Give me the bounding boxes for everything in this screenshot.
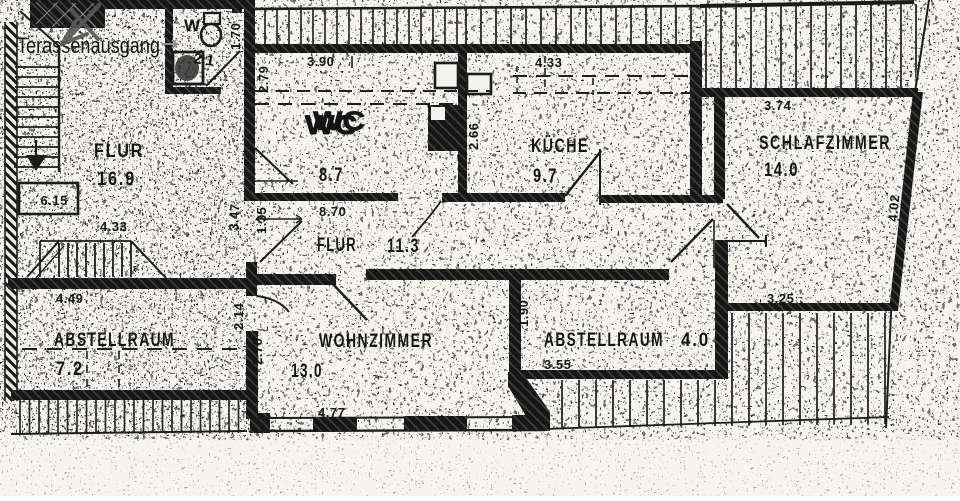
svg-text:WOHNZIMMER: WOHNZIMMER [319, 331, 433, 352]
svg-text:1.35: 1.35 [254, 207, 269, 234]
svg-text:4.49: 4.49 [56, 291, 83, 306]
svg-text:3.55: 3.55 [544, 357, 571, 372]
svg-text:4.77: 4.77 [318, 405, 345, 420]
svg-text:2.14: 2.14 [231, 302, 246, 330]
svg-text:FLUR: FLUR [94, 141, 144, 162]
svg-text:KÜCHE: KÜCHE [531, 136, 589, 157]
svg-text:ABSTELLRAUM: ABSTELLRAUM [544, 330, 664, 351]
svg-text:Terassenausgang: Terassenausgang [17, 33, 160, 58]
svg-text:4.02: 4.02 [885, 194, 902, 223]
svg-text:4.33: 4.33 [535, 55, 562, 70]
svg-text:8.70: 8.70 [319, 204, 346, 219]
svg-text:16.9: 16.9 [97, 169, 136, 190]
svg-text:3.74: 3.74 [764, 98, 792, 113]
svg-text:2.70: 2.70 [250, 338, 265, 365]
svg-text:8.7: 8.7 [319, 165, 344, 186]
svg-text:W: W [184, 16, 201, 35]
svg-text:2.1: 2.1 [192, 50, 215, 70]
svg-text:WC: WC [313, 106, 365, 136]
svg-text:11.3: 11.3 [387, 236, 420, 257]
svg-text:1.70: 1.70 [228, 23, 243, 50]
svg-text:4.0: 4.0 [681, 330, 710, 351]
svg-text:2.66: 2.66 [466, 123, 481, 150]
svg-text:FLUR: FLUR [317, 235, 357, 256]
svg-text:2.79: 2.79 [256, 66, 271, 93]
svg-text:9.7: 9.7 [533, 166, 558, 187]
svg-text:1.90: 1.90 [516, 300, 531, 327]
svg-text:4.33: 4.33 [100, 219, 127, 234]
svg-text:3.25: 3.25 [767, 291, 794, 306]
svg-text:3.47: 3.47 [226, 203, 242, 231]
svg-text:3.90: 3.90 [307, 54, 334, 69]
svg-text:←6.15: ←6.15 [27, 193, 68, 208]
svg-text:13.0: 13.0 [291, 361, 323, 382]
svg-text:14.0: 14.0 [764, 160, 799, 181]
svg-text:ABSTELLRAUM: ABSTELLRAUM [54, 330, 175, 351]
svg-text:SCHLAFZIMMER: SCHLAFZIMMER [759, 133, 891, 154]
svg-text:7.2: 7.2 [56, 359, 84, 380]
